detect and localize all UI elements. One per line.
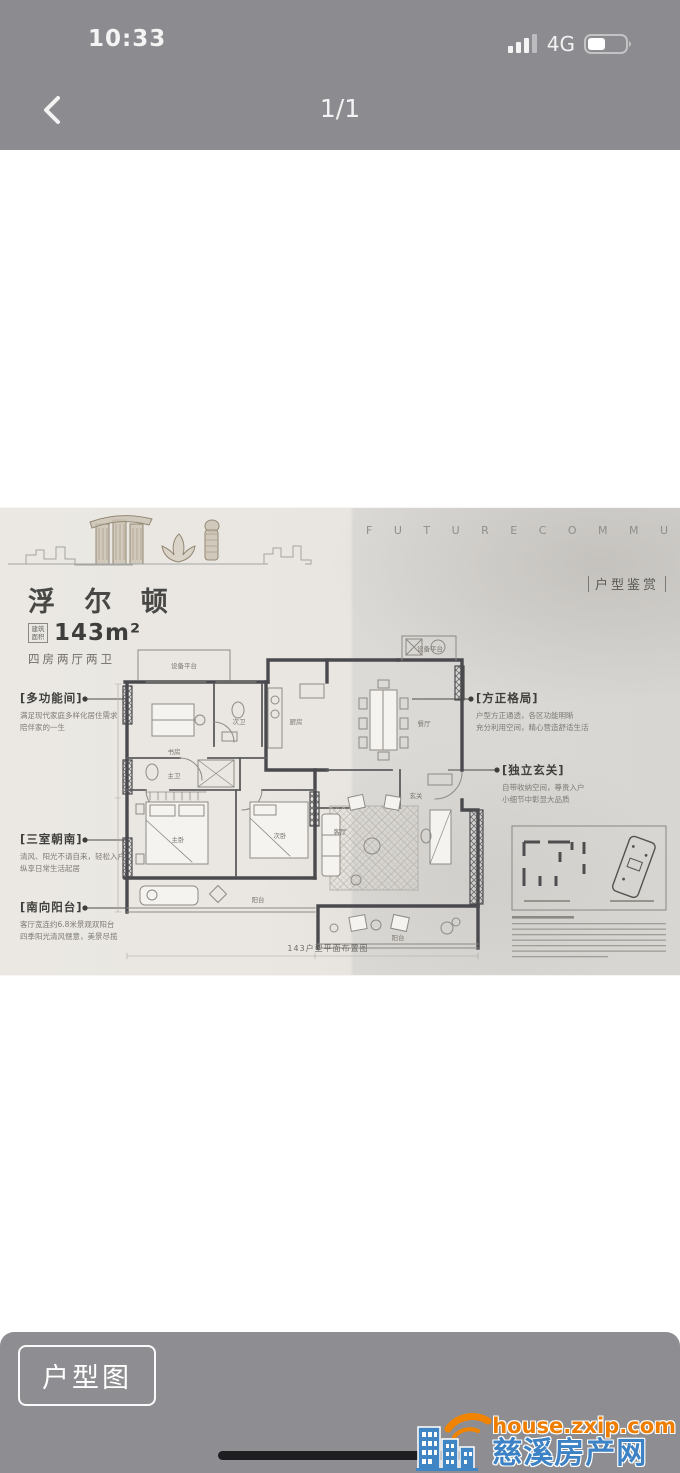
section-tag: 户型鉴赏 <box>588 574 666 593</box>
layout-summary: 四房两厅两卫 <box>28 651 115 667</box>
skyline-sketch <box>8 516 311 565</box>
room-label-balcony-se: 阳台 <box>392 933 405 942</box>
network-type-label: 4G <box>547 32 575 56</box>
room-label-kitchen: 厨房 <box>290 717 303 726</box>
watermark-url: house.zxip.com <box>492 1415 676 1437</box>
inset-building-position <box>611 835 656 899</box>
site-watermark: house.zxip.com 慈溪房产网 <box>412 1399 676 1473</box>
annotation-south-balcony: [南向阳台] 客厅宽连约6.8米景观双阳台 四季阳光清风惬意，美景尽揽 <box>20 899 118 942</box>
inset-mini-plan <box>524 842 584 886</box>
page-indicator: 1/1 <box>0 94 680 123</box>
room-label-bed2: 次卧 <box>274 831 288 840</box>
room-label-living: 客厅 <box>334 827 348 836</box>
room-label-foyer: 玄关 <box>410 791 424 800</box>
floorplan-tab-button[interactable]: 户型图 <box>18 1345 156 1406</box>
status-time: 10:33 <box>88 26 166 52</box>
watermark-site-name: 慈溪房产网 <box>492 1438 676 1470</box>
room-label-dining: 餐厅 <box>418 719 432 728</box>
room-label-bath2: 次卫 <box>233 717 247 726</box>
annotation-south-rooms: [三室朝南] 清风、阳光不请自来，轻松入户 纵享日常生活起居 <box>20 831 125 874</box>
room-label-study: 书房 <box>168 747 181 756</box>
inset-info-box <box>512 826 666 910</box>
phone-screen: 10:33 4G 1/1 <box>0 0 680 1473</box>
room-label-equip1: 设备平台 <box>171 661 197 670</box>
room-label-equip2: 设备平台 <box>417 644 443 653</box>
signal-icon <box>508 33 538 55</box>
battery-icon <box>584 32 634 56</box>
floorplan-title: 浮 尔 顿 <box>28 580 178 619</box>
annotation-multifunction: [多功能间] 满足现代家庭多样化居住需求 陪伴家的一生 <box>20 690 118 733</box>
status-icons: 4G <box>508 32 634 56</box>
room-label-bath1: 主卫 <box>168 771 182 780</box>
future-community-label: F U T U R E C O M M U N I T Y <box>366 524 680 537</box>
disclaimer-text-lines <box>512 916 666 957</box>
tag-bar-left <box>588 576 589 592</box>
area-value: 143m² <box>54 620 141 646</box>
watermark-text: house.zxip.com 慈溪房产网 <box>492 1415 676 1473</box>
floorplan-photo[interactable]: 设备平台 书房 次卫 厨房 设备平台 餐厅 玄关 主卫 主卧 次卧 客厅 阳台 … <box>0 508 680 975</box>
floor-plan: 设备平台 书房 次卫 厨房 设备平台 餐厅 玄关 主卫 主卧 次卧 客厅 阳台 … <box>115 636 483 959</box>
top-bar: 10:33 4G 1/1 <box>0 0 680 150</box>
annotation-foyer: [独立玄关] 自带收纳空间，尊贵入户 小细节中彰显大品质 <box>502 762 585 805</box>
area-label: 建筑面积 <box>28 623 48 643</box>
tag-bar-right <box>665 576 666 592</box>
plan-caption: 143户型平面布置图 <box>238 943 418 954</box>
room-label-master: 主卧 <box>172 835 186 844</box>
area-row: 建筑面积 143m² <box>28 620 141 646</box>
room-label-balcony-s: 阳台 <box>252 895 265 904</box>
annotation-square-layout: [方正格局] 户型方正通透，各区功能明晰 充分利用空间，精心营造舒适生活 <box>476 690 589 733</box>
buildings-logo-icon <box>412 1399 492 1473</box>
